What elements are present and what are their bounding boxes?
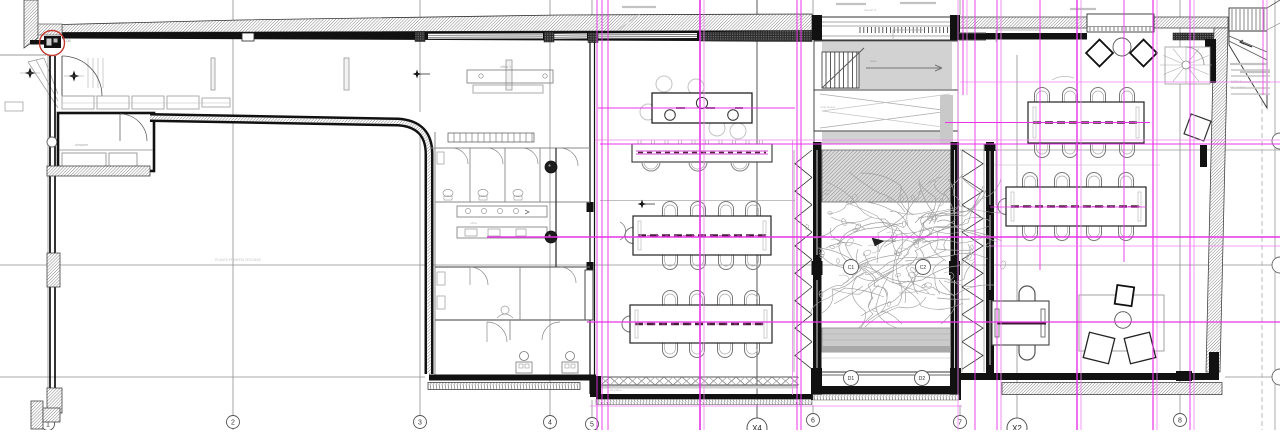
svg-text:PLANTA PRIMERA OFICINAS: PLANTA PRIMERA OFICINAS	[215, 258, 262, 262]
svg-text:office 1: office 1	[500, 65, 511, 69]
svg-text:8: 8	[1178, 418, 1182, 425]
svg-text:C1: C1	[848, 265, 855, 271]
svg-text:5: 5	[590, 422, 594, 429]
svg-text:nucleo 2: nucleo 2	[1230, 79, 1242, 83]
svg-text:X2: X2	[1012, 424, 1022, 430]
svg-text:3: 3	[418, 420, 422, 427]
svg-text:office: office	[470, 221, 477, 225]
svg-text:esc. emerg.: esc. emerg.	[1230, 85, 1246, 89]
svg-text:4: 4	[548, 420, 552, 427]
svg-text:2: 2	[231, 420, 235, 427]
svg-text:1: 1	[46, 422, 50, 429]
svg-text:X4: X4	[752, 424, 762, 430]
svg-text:v.04 plano ..: v.04 plano ..	[608, 388, 624, 392]
svg-text:D1: D1	[848, 376, 855, 382]
svg-text:C2: C2	[920, 265, 927, 271]
svg-text:almacen: almacen	[75, 143, 88, 147]
svg-text:meta lamina: meta lamina	[820, 105, 836, 109]
svg-text:sube: sube	[870, 59, 877, 63]
svg-text:6: 6	[811, 418, 815, 425]
svg-text:D2: D2	[919, 376, 926, 382]
svg-text:7: 7	[958, 420, 962, 427]
svg-text:forjado f1: forjado f1	[864, 8, 877, 12]
